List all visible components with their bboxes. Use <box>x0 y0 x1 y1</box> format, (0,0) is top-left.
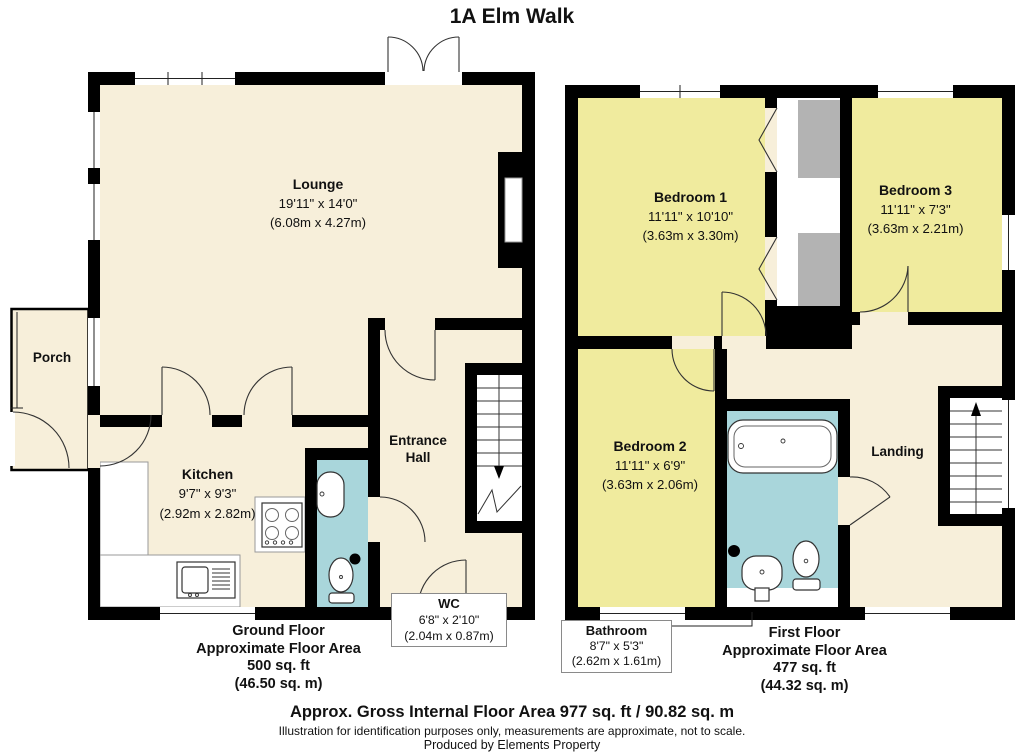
fireplace-recess <box>505 178 522 242</box>
bathroom-toilet-icon <box>793 541 820 590</box>
wc-label-box: WC 6'8" x 2'10" (2.04m x 0.87m) <box>391 593 507 647</box>
page-title: 1A Elm Walk <box>0 5 1024 29</box>
gross-area-text: Approx. Gross Internal Floor Area 977 sq… <box>0 703 1024 722</box>
staircase-down-icon <box>477 375 522 521</box>
bedroom1-label: Bedroom 1 11'11" x 10'10" (3.63m x 3.30m… <box>608 188 773 245</box>
bedroom2-label: Bedroom 2 11'11" x 6'9" (3.63m x 2.06m) <box>580 437 720 494</box>
french-doors-arc <box>388 37 459 72</box>
floorplan-canvas: 1A Elm Walk Lounge 19'11" x 14'0" (6.08m… <box>0 0 1024 753</box>
entrance-hall-label: Entrance Hall <box>378 432 458 466</box>
wardrobe-cupboard <box>798 233 840 310</box>
ground-floor-area-text: Ground Floor Approximate Floor Area 500 … <box>176 623 381 693</box>
kitchen-label: Kitchen 9'7" x 9'3" (2.92m x 2.82m) <box>135 464 280 524</box>
first-floor-plan <box>565 85 1015 626</box>
wardrobe-cupboard <box>798 100 840 178</box>
disclaimer-text: Illustration for identification purposes… <box>0 724 1024 738</box>
porch-label: Porch <box>16 349 88 366</box>
bathroom-label-box: Bathroom 8'7" x 5'3" (2.62m x 1.61m) <box>561 620 672 673</box>
porch-area <box>12 309 89 470</box>
bath-icon <box>728 420 837 473</box>
lounge-label: Lounge 19'11" x 14'0" (6.08m x 4.27m) <box>238 175 398 232</box>
wc-door-stop <box>350 554 361 565</box>
landing-label: Landing <box>855 443 940 460</box>
first-floor-area-text: First Floor Approximate Floor Area 477 s… <box>702 625 907 695</box>
bathroom-door-stop <box>728 545 740 557</box>
wc-toilet-icon <box>329 558 354 603</box>
bedroom3-label: Bedroom 3 11'11" x 7'3" (3.63m x 2.21m) <box>843 181 988 238</box>
kitchen-sink-icon <box>177 562 235 598</box>
staircase-up-icon <box>950 398 1002 514</box>
producer-text: Produced by Elements Property <box>0 738 1024 752</box>
wc-basin-icon <box>317 472 344 517</box>
ground-floor-plan <box>9 37 535 620</box>
